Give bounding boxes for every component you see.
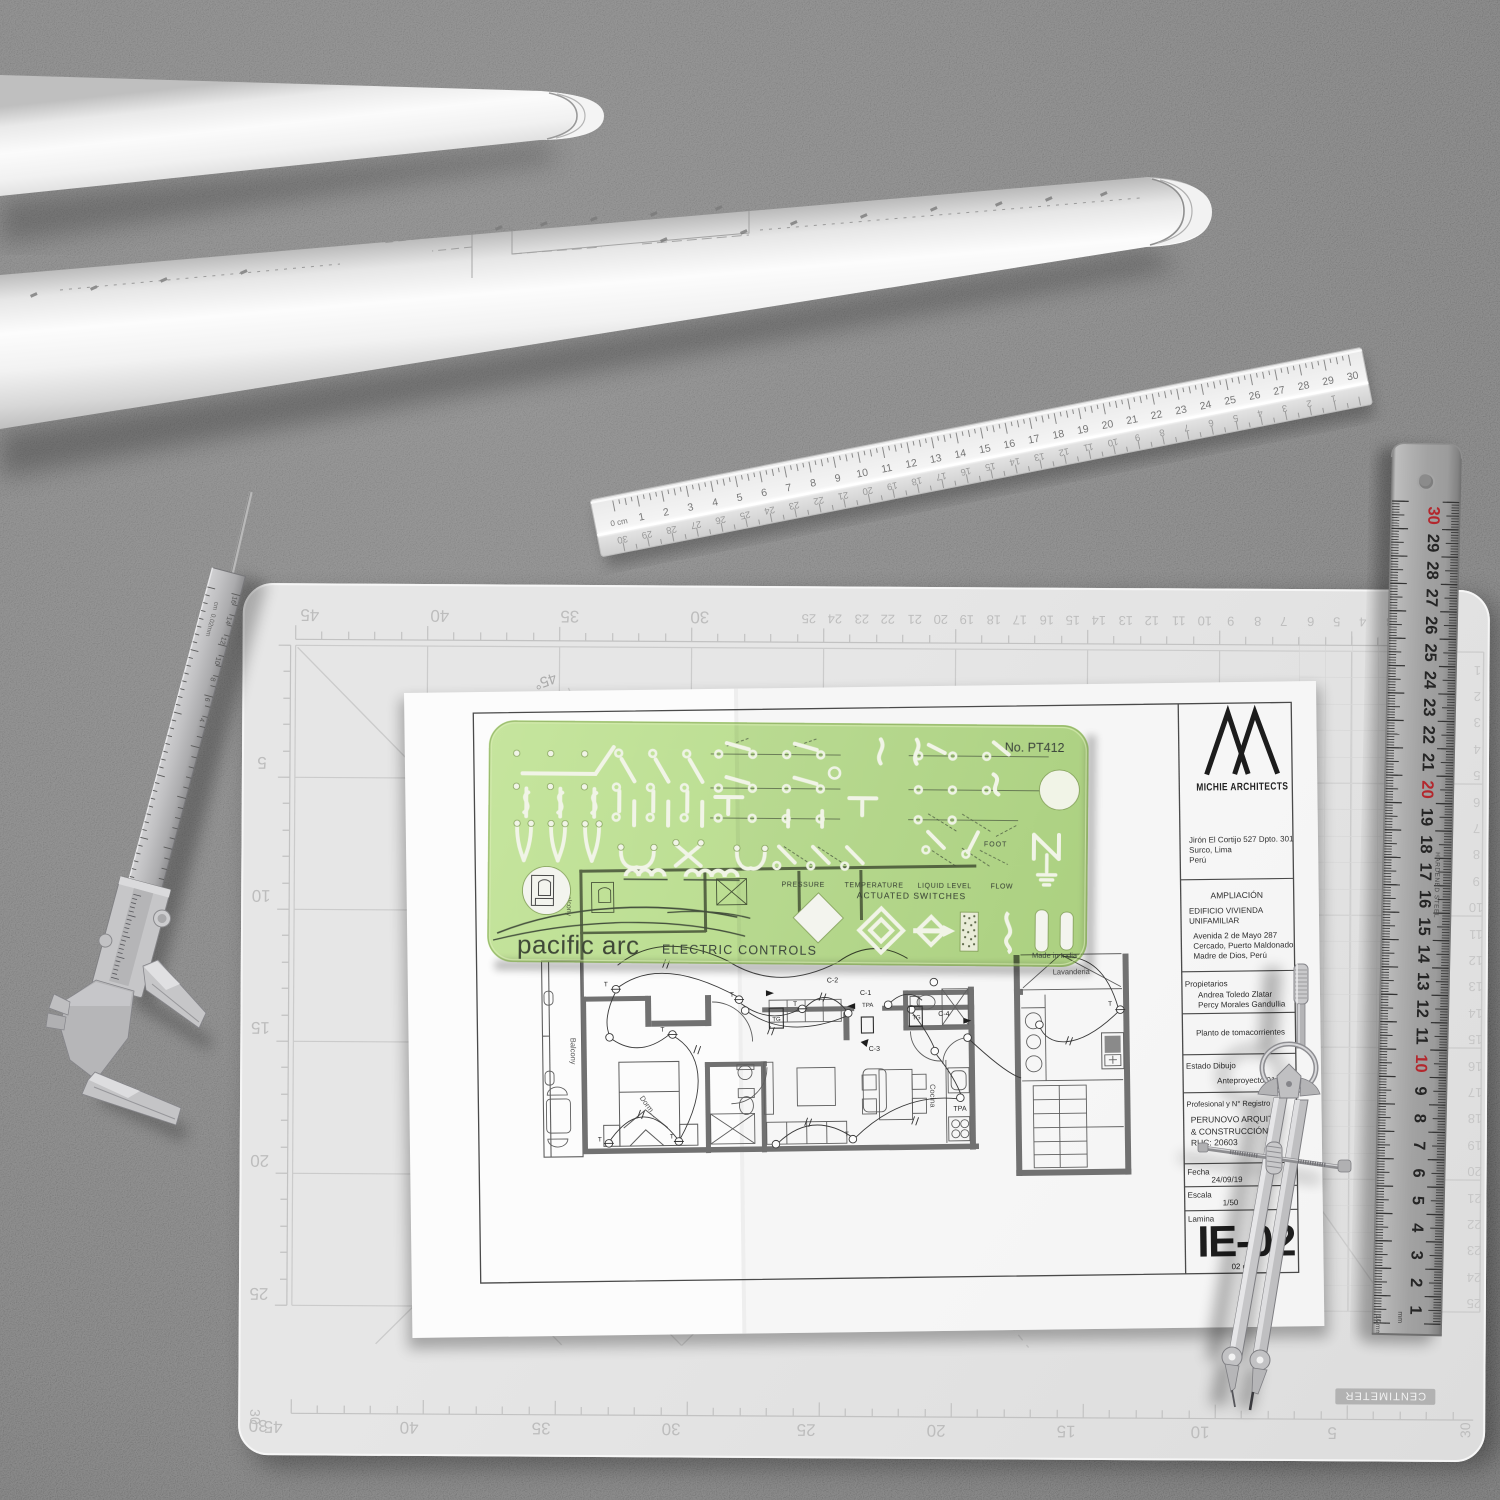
svg-text:35: 35 — [560, 607, 579, 626]
svg-text:21: 21 — [1467, 1191, 1482, 1206]
svg-text:27: 27 — [1422, 588, 1440, 607]
svg-text:21: 21 — [837, 489, 850, 502]
svg-text:C-2: C-2 — [827, 977, 838, 984]
svg-text:Avenida 2 de Mayo 287: Avenida 2 de Mayo 287 — [1193, 931, 1278, 941]
svg-text:14: 14 — [953, 447, 967, 461]
svg-text:5: 5 — [1327, 1423, 1337, 1442]
svg-text:30: 30 — [1346, 369, 1360, 383]
svg-text:10: 10 — [1107, 435, 1120, 448]
svg-text:18: 18 — [910, 474, 923, 487]
svg-text:20: 20 — [1467, 1164, 1482, 1179]
svg-text:16: 16 — [1415, 890, 1433, 909]
svg-text:3: 3 — [1474, 715, 1481, 730]
svg-text:& CONSTRUCCIÓN S: & CONSTRUCCIÓN S — [1191, 1126, 1277, 1137]
svg-text:15: 15 — [978, 442, 992, 456]
svg-text:22: 22 — [1150, 408, 1164, 422]
svg-text:4: 4 — [1473, 742, 1480, 757]
svg-text:23: 23 — [1420, 698, 1438, 717]
svg-text:10: 10 — [1469, 900, 1484, 915]
svg-text:22: 22 — [881, 612, 896, 627]
svg-text:UNIFAMILIAR: UNIFAMILIAR — [1189, 916, 1240, 926]
svg-text:24: 24 — [1467, 1270, 1482, 1285]
svg-text:15: 15 — [1057, 1422, 1076, 1441]
svg-text:17: 17 — [1416, 862, 1434, 881]
svg-text:4: 4 — [1408, 1223, 1426, 1233]
svg-text:29: 29 — [641, 528, 654, 541]
svg-text:5: 5 — [1333, 614, 1340, 629]
svg-text:18: 18 — [1052, 428, 1066, 442]
svg-text:T: T — [604, 981, 608, 988]
svg-text:18: 18 — [1417, 835, 1435, 854]
svg-text:13: 13 — [1119, 613, 1134, 628]
svg-text:10: 10 — [1412, 1054, 1430, 1073]
svg-text:26: 26 — [714, 513, 727, 526]
svg-text:ACTUATED SWITCHES: ACTUATED SWITCHES — [857, 890, 966, 901]
svg-text:15: 15 — [1066, 613, 1081, 628]
svg-text:FOOT: FOOT — [984, 841, 1008, 848]
svg-text:10: 10 — [1198, 613, 1213, 628]
svg-text:20: 20 — [927, 1421, 946, 1440]
svg-text:45: 45 — [264, 1417, 283, 1436]
svg-text:Propietarios: Propietarios — [1185, 979, 1228, 989]
svg-text:27: 27 — [690, 518, 703, 531]
svg-text:10: 10 — [855, 467, 869, 481]
svg-text:5: 5 — [1473, 768, 1480, 783]
svg-text:21: 21 — [908, 612, 923, 627]
svg-text:7: 7 — [1410, 1141, 1428, 1151]
svg-text:24: 24 — [1199, 399, 1213, 413]
svg-text:11: 11 — [1412, 1027, 1430, 1045]
svg-text:FLOW: FLOW — [991, 883, 1014, 890]
svg-text:19: 19 — [1076, 423, 1090, 437]
svg-text:30: 30 — [1424, 506, 1442, 525]
svg-text:C-4: C-4 — [938, 1011, 949, 1018]
svg-text:Fecha: Fecha — [1187, 1167, 1210, 1176]
svg-text:14: 14 — [1009, 455, 1022, 468]
svg-text:30: 30 — [1457, 1422, 1473, 1438]
svg-text:Cercado, Puerto Maldonado: Cercado, Puerto Maldonado — [1193, 940, 1294, 950]
svg-text:30: 30 — [690, 608, 709, 627]
svg-text:1: 1 — [1406, 1305, 1424, 1315]
svg-text:12: 12 — [1058, 445, 1071, 458]
svg-text:5: 5 — [1409, 1196, 1427, 1206]
svg-text:Cocina: Cocina — [928, 1084, 937, 1108]
svg-text:C-1: C-1 — [860, 990, 871, 997]
svg-text:8: 8 — [1411, 1114, 1429, 1124]
svg-text:T: T — [845, 1131, 849, 1138]
svg-text:Made in India: Made in India — [1032, 951, 1078, 960]
svg-text:23: 23 — [855, 612, 870, 627]
svg-text:MICHIE ARCHITECTS: MICHIE ARCHITECTS — [1196, 780, 1288, 793]
svg-text:28: 28 — [1297, 379, 1311, 393]
svg-text:16: 16 — [1040, 613, 1055, 628]
svg-text:Perú: Perú — [1189, 856, 1206, 865]
svg-text:18: 18 — [987, 612, 1002, 627]
svg-text:AMPLIACIÓN: AMPLIACIÓN — [1210, 890, 1263, 901]
svg-text:Escala: Escala — [1188, 1190, 1213, 1199]
svg-text:13: 13 — [1033, 450, 1046, 463]
svg-text:26: 26 — [1248, 389, 1262, 403]
svg-text:40: 40 — [400, 1418, 419, 1437]
svg-text:35: 35 — [532, 1419, 551, 1438]
svg-text:20: 20 — [861, 484, 874, 497]
svg-text:28: 28 — [1423, 561, 1441, 580]
svg-text:Andrea Toledo Zlatar: Andrea Toledo Zlatar — [1198, 990, 1273, 1000]
svg-text:TEMPERATURE: TEMPERATURE — [845, 882, 904, 890]
svg-text:30: 30 — [662, 1419, 681, 1438]
svg-text:15: 15 — [251, 1018, 270, 1037]
svg-text:20: 20 — [934, 612, 949, 627]
svg-text:17: 17 — [1013, 612, 1028, 627]
svg-text:16: 16 — [1468, 1059, 1483, 1074]
svg-text:7: 7 — [1473, 821, 1480, 836]
svg-text:9: 9 — [1227, 614, 1234, 629]
svg-text:16: 16 — [1003, 437, 1017, 451]
svg-text:20: 20 — [1418, 780, 1436, 799]
svg-text:2: 2 — [1407, 1278, 1425, 1288]
svg-text:mm: mm — [1396, 1311, 1403, 1323]
svg-text:No. PT412: No. PT412 — [1005, 741, 1065, 756]
svg-text:15: 15 — [1415, 917, 1433, 936]
svg-text:9: 9 — [1411, 1086, 1429, 1096]
svg-text:17: 17 — [1468, 1085, 1483, 1100]
svg-text:25: 25 — [1467, 1296, 1482, 1311]
svg-text:21: 21 — [1125, 413, 1139, 427]
svg-text:EDIFICIO VIVIENDA: EDIFICIO VIVIENDA — [1189, 906, 1264, 916]
svg-text:T: T — [793, 1001, 797, 1008]
svg-text:TPA: TPA — [953, 1106, 967, 1113]
svg-text:25: 25 — [1223, 394, 1237, 408]
svg-text:25: 25 — [802, 611, 817, 626]
svg-text:11: 11 — [1172, 613, 1186, 628]
svg-text:ELECTRIC CONTROLS: ELECTRIC CONTROLS — [662, 943, 817, 958]
svg-text:2: 2 — [1474, 689, 1481, 704]
svg-text:T: T — [1108, 1001, 1112, 1008]
svg-text:22: 22 — [1467, 1217, 1482, 1232]
svg-text:15: 15 — [984, 460, 997, 473]
svg-text:19: 19 — [960, 612, 975, 627]
svg-text:29: 29 — [1321, 374, 1335, 388]
svg-text:14: 14 — [1468, 1006, 1483, 1021]
svg-text:20: 20 — [1101, 418, 1115, 432]
svg-text:27: 27 — [1272, 384, 1286, 398]
svg-text:TG: TG — [772, 1017, 781, 1023]
svg-text:18: 18 — [1468, 1111, 1483, 1126]
svg-text:12: 12 — [1469, 953, 1484, 968]
svg-text:6: 6 — [1409, 1168, 1427, 1178]
svg-text:CENTIMETER: CENTIMETER — [1345, 1389, 1427, 1401]
svg-text:PRESSURE: PRESSURE — [782, 882, 825, 889]
svg-text:17: 17 — [1027, 433, 1041, 447]
svg-text:10: 10 — [1191, 1422, 1210, 1441]
svg-text:24: 24 — [1420, 671, 1438, 691]
svg-text:22: 22 — [1419, 725, 1437, 744]
svg-text:4: 4 — [1359, 614, 1366, 629]
svg-text:40: 40 — [430, 606, 449, 625]
svg-text:17: 17 — [935, 469, 948, 482]
svg-text:13: 13 — [929, 452, 943, 466]
svg-text:9: 9 — [1473, 874, 1480, 889]
svg-text:25: 25 — [1421, 643, 1439, 662]
svg-text:T: T — [730, 992, 734, 999]
svg-text:TG: TG — [912, 1015, 921, 1021]
svg-text:T: T — [670, 1134, 674, 1141]
svg-text:10: 10 — [252, 886, 271, 905]
svg-text:28: 28 — [665, 523, 678, 536]
svg-text:1: 1 — [1474, 663, 1481, 678]
svg-text:14: 14 — [1092, 613, 1107, 628]
svg-text:LIQUID LEVEL: LIQUID LEVEL — [918, 883, 972, 890]
svg-text:24: 24 — [828, 611, 843, 626]
svg-text:30: 30 — [616, 533, 629, 546]
svg-text:3: 3 — [1407, 1250, 1425, 1260]
svg-text:29: 29 — [1424, 534, 1442, 553]
svg-text:T: T — [598, 1136, 602, 1143]
svg-text:13: 13 — [1414, 972, 1432, 991]
svg-text:Surco, Lima: Surco, Lima — [1189, 845, 1232, 855]
svg-text:30: 30 — [247, 1409, 263, 1425]
svg-text:23: 23 — [1467, 1243, 1482, 1258]
svg-text:19: 19 — [1468, 1138, 1483, 1153]
svg-text:20: 20 — [250, 1151, 269, 1170]
svg-text:45: 45 — [300, 605, 319, 624]
svg-text:HARDENED STEEL: HARDENED STEEL — [1432, 852, 1440, 918]
svg-text:Jirón El Cortijo 527 Dpto. 301: Jirón El Cortijo 527 Dpto. 301 — [1189, 834, 1294, 844]
svg-text:12: 12 — [1413, 999, 1431, 1018]
svg-text:TPA: TPA — [862, 1003, 873, 1009]
svg-text:T: T — [660, 1027, 664, 1034]
svg-text:1/2mm: 1/2mm — [1374, 1315, 1381, 1335]
svg-text:Balcony: Balcony — [569, 1038, 578, 1065]
svg-text:6: 6 — [1473, 795, 1480, 810]
svg-text:19: 19 — [886, 479, 899, 492]
svg-text:25: 25 — [739, 508, 752, 521]
svg-text:25: 25 — [249, 1284, 268, 1303]
svg-text:19: 19 — [1417, 808, 1435, 827]
svg-text:pacific arc: pacific arc — [517, 929, 640, 960]
svg-text:12: 12 — [904, 457, 918, 471]
svg-text:11: 11 — [1082, 440, 1094, 453]
svg-text:Madre de Dios, Perú: Madre de Dios, Perú — [1193, 951, 1266, 961]
svg-text:8: 8 — [1254, 614, 1261, 629]
svg-text:13: 13 — [1468, 979, 1483, 994]
svg-text:23: 23 — [1174, 403, 1188, 417]
svg-text:24: 24 — [763, 503, 776, 516]
svg-text:14: 14 — [1414, 945, 1432, 965]
svg-text:PERUNOVO ARQUITE: PERUNOVO ARQUITE — [1191, 1114, 1280, 1125]
svg-text:6: 6 — [1307, 614, 1314, 629]
svg-text:21: 21 — [1419, 753, 1437, 772]
svg-text:12: 12 — [1145, 613, 1160, 628]
svg-text:8: 8 — [1473, 847, 1480, 862]
svg-text:26: 26 — [1422, 616, 1440, 635]
svg-text:C-3: C-3 — [869, 1046, 880, 1053]
svg-text:23: 23 — [788, 499, 801, 512]
svg-text:11: 11 — [1469, 927, 1483, 942]
svg-text:15: 15 — [1468, 1032, 1483, 1047]
svg-text:7: 7 — [1280, 614, 1287, 629]
svg-text:5: 5 — [257, 753, 267, 772]
svg-text:25: 25 — [797, 1420, 816, 1439]
svg-text:22: 22 — [812, 494, 825, 507]
svg-text:16: 16 — [959, 465, 972, 478]
